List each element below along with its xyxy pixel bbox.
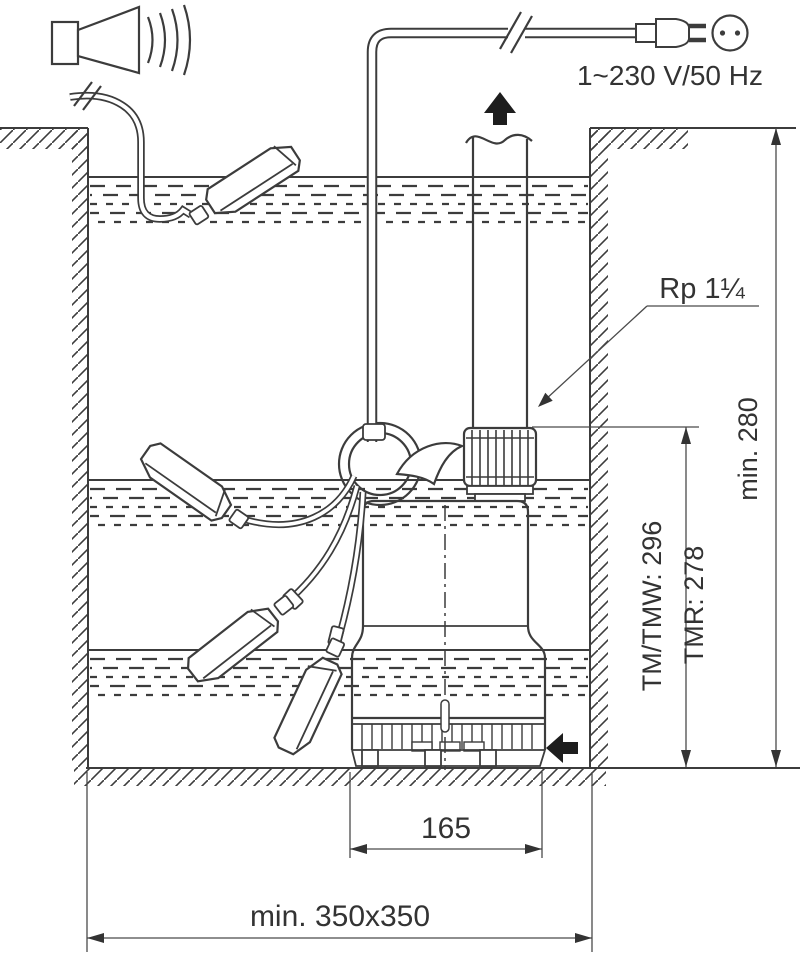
alarm-horn-icon xyxy=(52,5,190,75)
pipe-break-squiggle xyxy=(466,135,532,144)
installation-diagram: 1~230 V/50 Hz xyxy=(0,0,800,962)
pump-foot xyxy=(362,750,378,766)
pump-foot xyxy=(480,750,496,766)
pump-foot xyxy=(425,750,441,766)
pit-depth-label: min. 280 xyxy=(733,397,763,501)
threaded-coupling xyxy=(464,428,536,501)
cable-entry-gland xyxy=(363,424,385,440)
pump xyxy=(339,423,545,770)
pit-structure xyxy=(0,128,800,786)
flow-up-arrow-icon xyxy=(484,92,516,125)
pump-height-tm-label: TM/TMW: 296 xyxy=(637,521,667,692)
outlet-width-label: 165 xyxy=(421,812,471,845)
inflow-arrow-icon xyxy=(546,733,578,763)
pit-wall-right xyxy=(590,128,608,768)
discharge-pipe xyxy=(466,135,532,429)
float-gland xyxy=(189,205,209,225)
power-rating-label: 1~230 V/50 Hz xyxy=(577,60,763,91)
power-plug-icon xyxy=(636,19,706,47)
sound-waves-icon xyxy=(148,5,190,75)
center-pin xyxy=(441,700,449,732)
pit-footprint-label: min. 350x350 xyxy=(250,900,430,933)
float-switch-mid-level xyxy=(183,587,300,689)
pit-wall-left xyxy=(72,128,88,768)
pump-height-tmr-label: TMR: 278 xyxy=(679,546,709,665)
power-socket-icon xyxy=(713,16,748,51)
pit-floor-hatch xyxy=(74,768,606,786)
thread-size-label: Rp 1¼ xyxy=(659,273,745,305)
